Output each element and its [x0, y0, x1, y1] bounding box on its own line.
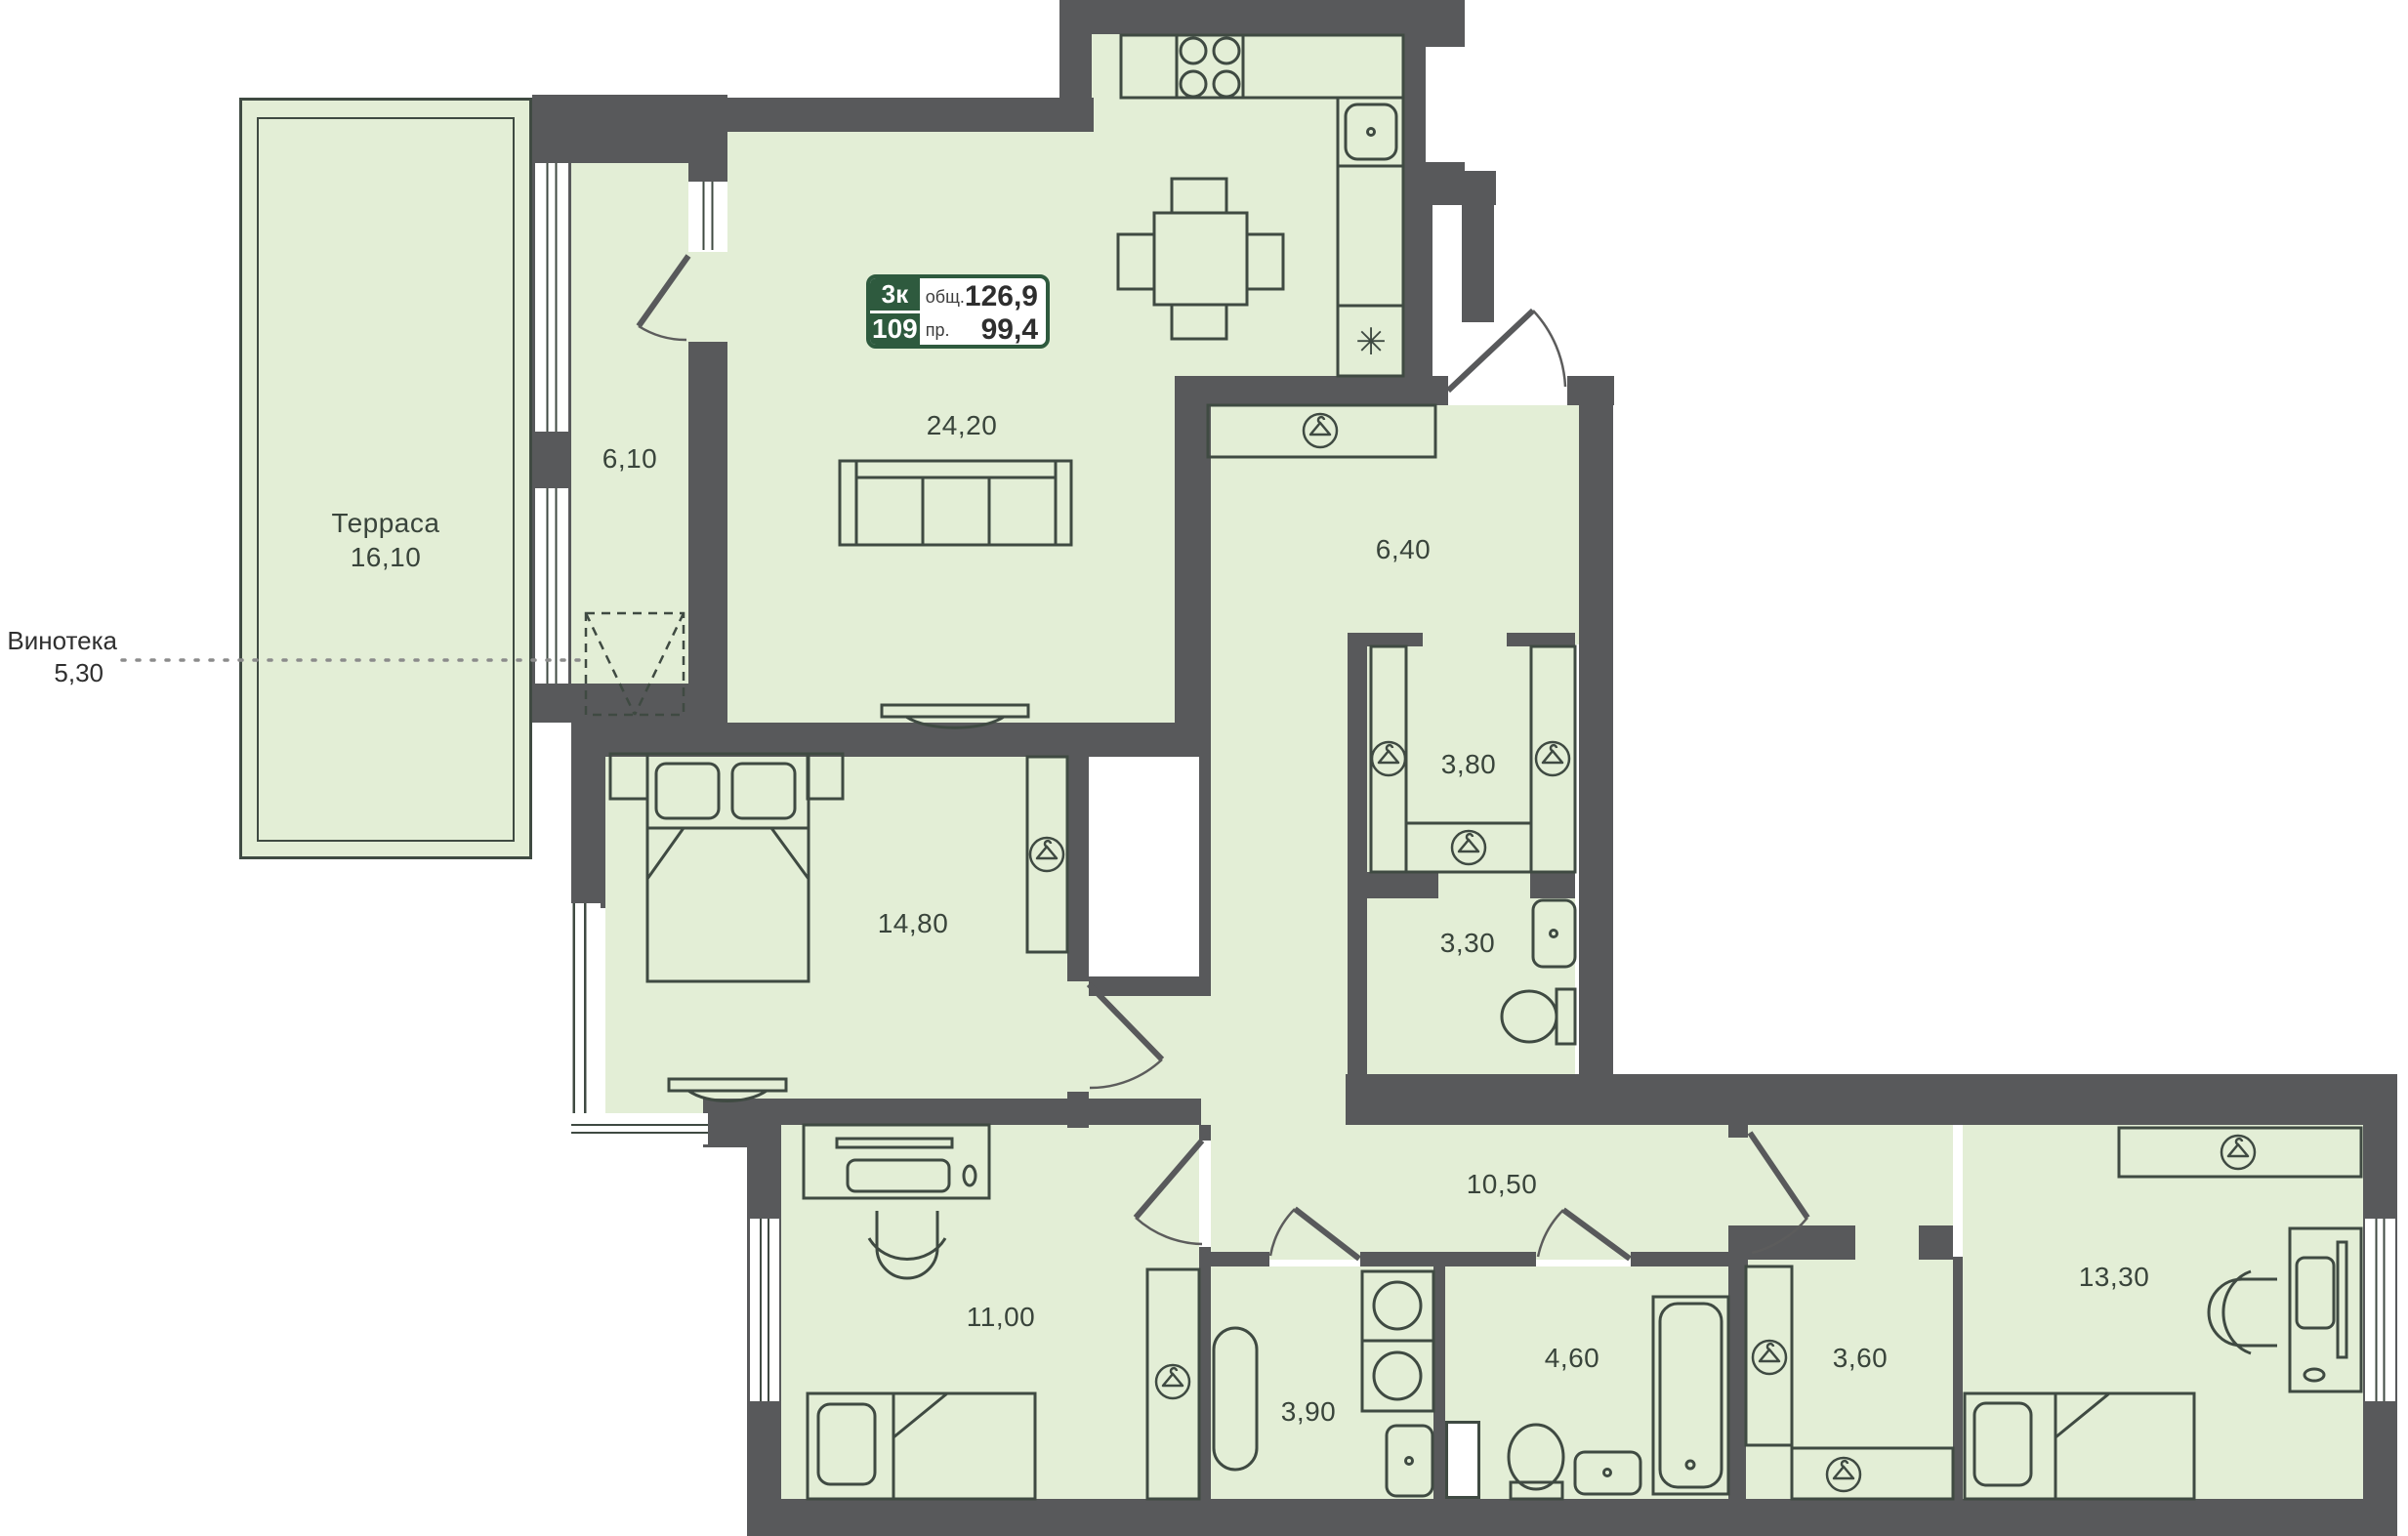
nightstand [808, 754, 843, 799]
bathroom-area: 4,60 [1474, 1341, 1670, 1375]
wardrobe-area: 3,80 [1371, 747, 1566, 781]
bath-sink-icon [1575, 1452, 1640, 1494]
apartment-badge: 3к 109 общ. 126,9 пр. 99,4 [866, 274, 1050, 349]
bedroom2-area: 13,30 [2016, 1260, 2212, 1294]
loggia-area: 6,10 [532, 441, 727, 476]
furniture-layer [0, 0, 2408, 1536]
tv-console [669, 1079, 786, 1091]
bathtub [1653, 1297, 1728, 1494]
washer-drum [1374, 1282, 1421, 1329]
chair [1172, 305, 1226, 339]
hanger-icon [1030, 838, 1063, 871]
pillow [818, 1404, 875, 1484]
callout-name: Винотека [0, 625, 117, 657]
blanket-fold [893, 1393, 947, 1437]
wardrobe [1792, 1448, 1953, 1499]
chair [1247, 234, 1283, 289]
tv-icon [906, 717, 1004, 727]
hanger-icon [1827, 1458, 1860, 1491]
badge-total-area: 126,9 [965, 280, 1038, 313]
stove-burner-icon [1181, 38, 1206, 63]
toilet-tank [1557, 989, 1575, 1044]
snowflake-icon: ✳ [1350, 320, 1391, 364]
terrace-area: 16,10 [288, 540, 483, 574]
single-bed [1965, 1393, 2194, 1499]
blanket-fold [2055, 1393, 2109, 1437]
wardrobe [1027, 757, 1067, 952]
terrace-name: Терраса [288, 506, 483, 540]
badge-rooms-count: 3к [870, 278, 920, 313]
kitchen-sink-icon [1346, 104, 1396, 159]
badge-total-label: общ. [926, 287, 965, 308]
monitor-icon [2338, 1242, 2346, 1357]
hanger-icon [2221, 1136, 2255, 1169]
drain-dot [1604, 1470, 1611, 1476]
sofa [840, 461, 1071, 545]
hanger-icon [1452, 831, 1485, 864]
double-bed [647, 754, 809, 981]
bedroom1-area: 14,80 [815, 906, 1011, 940]
callout-area: 5,30 [0, 657, 117, 689]
laundry-area: 3,90 [1211, 1394, 1406, 1429]
badge-living-area: 99,4 [981, 313, 1038, 347]
mouse-icon [964, 1166, 976, 1185]
wine-storage-marker [586, 613, 684, 715]
corridor-area: 10,50 [1404, 1167, 1599, 1201]
living-area: 24,20 [864, 408, 1059, 442]
bathroom-door [1538, 1210, 1630, 1259]
laundry-door [1270, 1209, 1359, 1259]
pillow [1974, 1403, 2031, 1485]
mouse-icon [2304, 1369, 2324, 1381]
stove-burner-icon [1181, 71, 1206, 97]
tv-console [882, 705, 1028, 717]
badge-plan-number: 109 [870, 313, 920, 346]
laundry-sink-icon [1387, 1426, 1432, 1496]
toilet-tank [1511, 1482, 1562, 1499]
stove-burner-icon [1214, 71, 1239, 97]
loggia-door [639, 256, 688, 340]
badge-left: 3к 109 [870, 278, 920, 345]
toilet-icon [1509, 1425, 1563, 1489]
pillow [732, 764, 795, 818]
kids-room-area: 11,00 [903, 1300, 1099, 1334]
drain-dot [1368, 129, 1375, 136]
wine-storage-callout: Винотека 5,30 [0, 625, 117, 689]
dining-table [1154, 213, 1247, 305]
chair [1118, 234, 1154, 289]
floor-plan: Терраса 16,10 6,10 24,20 6,40 3,80 3,30 … [0, 0, 2408, 1536]
desk-chair [877, 1211, 937, 1278]
monitor-icon [837, 1139, 952, 1147]
bedroom2-door [1750, 1133, 1807, 1253]
toilet-icon [1502, 991, 1557, 1042]
drain-dot [1686, 1461, 1694, 1469]
keyboard-icon [2297, 1258, 2334, 1328]
terrace-label: Терраса 16,10 [288, 506, 483, 574]
badge-right: общ. 126,9 пр. 99,4 [920, 278, 1046, 345]
kitchen-counter [1121, 35, 1403, 98]
tv-icon [688, 1091, 767, 1101]
wc-area: 3,30 [1370, 926, 1565, 960]
hanger-icon [1156, 1365, 1189, 1398]
keyboard-icon [848, 1160, 949, 1191]
closet-area: 3,60 [1763, 1341, 1958, 1375]
hallway-area: 6,40 [1306, 532, 1501, 566]
dryer-drum [1374, 1352, 1421, 1399]
desk-chair [2209, 1279, 2277, 1346]
pillow [656, 764, 719, 818]
bedroom1-door [1089, 984, 1162, 1088]
stove-burner-icon [1214, 38, 1239, 63]
drain-dot [1406, 1458, 1413, 1465]
kitchen-cabinet [1338, 166, 1403, 306]
kids-room-door [1136, 1141, 1202, 1244]
badge-living-label: пр. [926, 320, 950, 341]
nightstand [610, 754, 647, 799]
chair [1172, 179, 1226, 213]
hanger-icon [1304, 414, 1337, 447]
desk [2290, 1228, 2361, 1391]
entry-door [1448, 311, 1565, 391]
desk-chair-back [869, 1238, 945, 1259]
blanket-fold [771, 828, 809, 879]
blanket-fold [647, 828, 684, 879]
